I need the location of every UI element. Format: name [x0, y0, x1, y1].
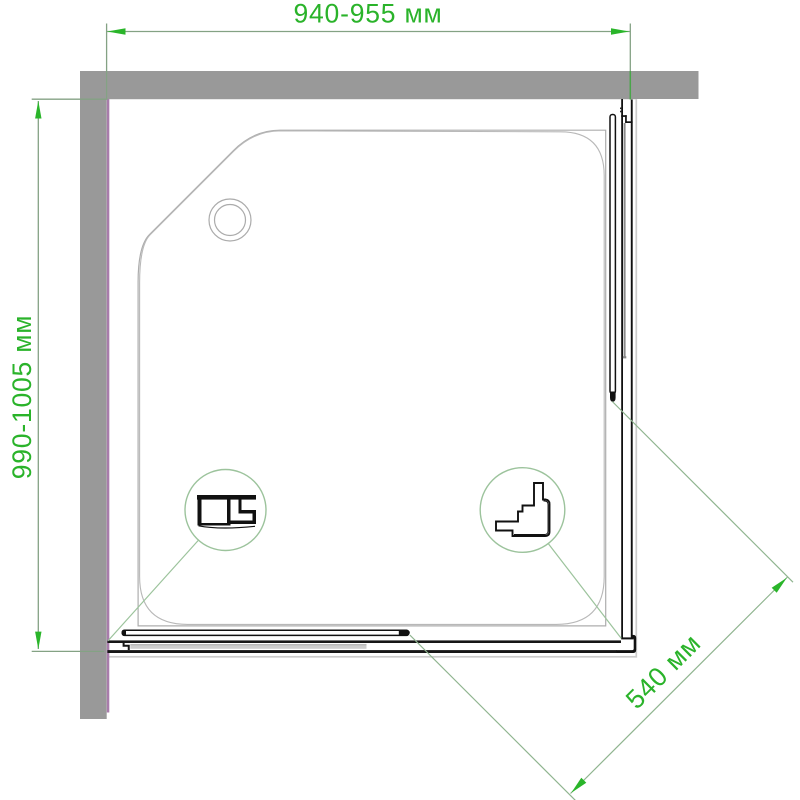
svg-text:990-1005 мм: 990-1005 мм — [7, 315, 37, 480]
svg-text:940-955 мм: 940-955 мм — [293, 0, 442, 29]
